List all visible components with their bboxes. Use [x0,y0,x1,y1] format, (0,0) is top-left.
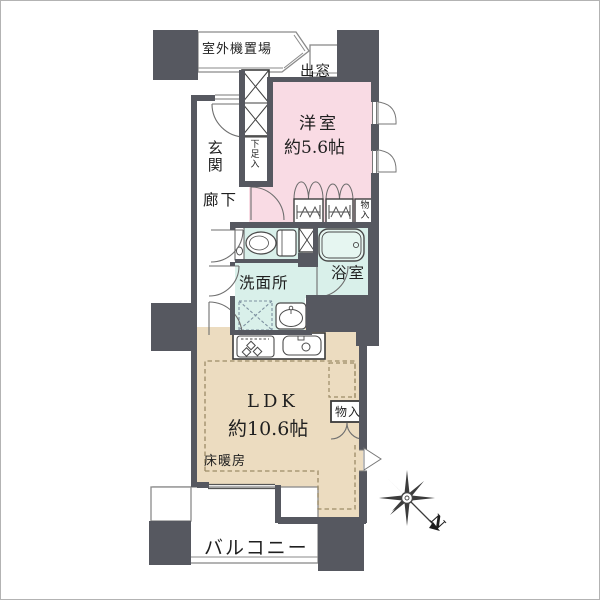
floor-heating-label: 床暖房 [204,450,246,469]
ldk-storage-label: 物入 [335,403,361,420]
pillar-bottom-right [318,521,364,571]
vanity-sink-icon [276,303,306,329]
pillar-top-right [337,30,379,80]
washroom-label: 洗面所 [239,271,289,293]
balcony-side-nook [151,487,191,521]
shaft-box [242,70,269,136]
pipe-space-icon [299,228,315,252]
floorplan-image: 室外機置場 出窓 洋室 約5.6帖 玄関 下足入 廊下 物入 洗面所 浴室 LD… [0,0,600,600]
hallway-label: 廊下 [203,188,238,210]
entrance-label: 玄関 [207,140,224,174]
ldk-size-label: 約10.6帖 [228,414,308,441]
kitchen-counter [233,333,325,359]
shoe-cabinet-label: 下足入 [250,140,260,170]
bathtub-icon [319,229,364,261]
ldk-label: LDK [247,391,299,412]
western-room-size-label: 約5.6帖 [284,133,345,158]
outdoor-unit-label: 室外機置場 [202,38,272,57]
floorplan-drawing [1,1,599,599]
washroom-door-swing [209,266,239,296]
pillar-bottom-left [149,521,191,565]
room-washroom-doorway [303,267,315,298]
pillar-top-left [153,30,198,80]
bedroom-closet-label: 物入 [360,201,370,221]
western-room-label: 洋室 [299,109,339,134]
bay-window-label: 出窓 [300,60,331,81]
pillar-mid-left [151,303,197,351]
bathroom-label: 浴室 [331,261,366,283]
balcony-label: バルコニー [204,533,309,560]
